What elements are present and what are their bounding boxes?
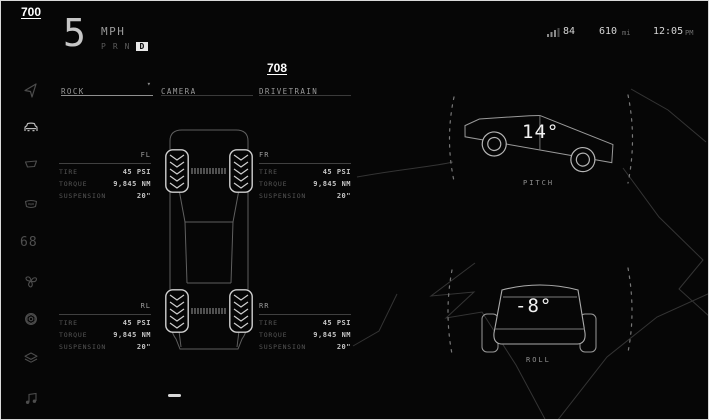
annotation-708: 708 [267, 61, 287, 75]
torque-value: 9,845 NM [113, 180, 151, 188]
roll-bracket-right [628, 268, 632, 352]
chevron-down-icon: ▾ [147, 80, 151, 88]
tire-label: TIRE [259, 168, 278, 176]
tab-rock-label: ROCK [61, 87, 85, 96]
suspension-label: SUSPENSION [59, 192, 106, 200]
pitch-value: 14° [522, 121, 559, 143]
sidebar-item-navigation[interactable] [23, 82, 41, 100]
wheel-panel-fl: FL TIRE45 PSI TORQUE9,845 NM SUSPENSION2… [59, 151, 151, 200]
suspension-label: SUSPENSION [259, 343, 306, 351]
suspension-label: SUSPENSION [59, 343, 106, 351]
sidebar-item-defrost[interactable] [23, 196, 41, 214]
sidebar-item-vehicle[interactable] [23, 119, 41, 137]
tire-rl [166, 290, 188, 332]
tire-value: 45 PSI [323, 168, 351, 176]
wiper-icon [23, 156, 39, 172]
tab-drivetrain-label: DRIVETRAIN [259, 87, 318, 96]
suspension-value: 20" [337, 192, 351, 200]
fan-icon [23, 273, 39, 289]
torque-value: 9,845 NM [313, 180, 351, 188]
navigation-arrow-icon [23, 82, 39, 98]
sidebar-item-wheel-hub[interactable] [23, 311, 41, 329]
wheel-hub-icon [23, 311, 39, 327]
wheel-panel-rl: RL TIRE45 PSI TORQUE9,845 NM SUSPENSION2… [59, 302, 151, 351]
tab-camera[interactable]: CAMERA [161, 79, 253, 96]
truck-top-view [151, 125, 267, 357]
tab-drivetrain[interactable]: DRIVETRAIN [259, 79, 351, 96]
roll-value: -8° [515, 295, 552, 317]
wheel-panel-rr: RR TIRE45 PSI TORQUE9,845 NM SUSPENSION2… [259, 302, 351, 351]
torque-label: TORQUE [59, 331, 87, 339]
sidebar-item-layers[interactable] [23, 350, 41, 368]
torque-label: TORQUE [259, 180, 287, 188]
tire-rr [230, 290, 252, 332]
tire-label: TIRE [259, 319, 278, 327]
roll-bracket-left [448, 270, 452, 354]
wheel-panel-fr: FR TIRE45 PSI TORQUE9,845 NM SUSPENSION2… [259, 151, 351, 200]
wheel-panel-fr-id: FR [259, 151, 351, 164]
tire-fl [166, 150, 188, 192]
cybertruck-offroad-screen: 700 708 5 MPH PRND 84 610 mi 12:05 PM [0, 0, 709, 420]
drag-handle[interactable] [168, 394, 181, 397]
sidebar-item-fan[interactable] [23, 273, 41, 291]
layers-icon [23, 350, 39, 366]
music-note-icon [23, 390, 39, 406]
car-icon [23, 119, 39, 135]
sidebar-item-media[interactable] [23, 390, 41, 408]
wheel-panel-fl-id: FL [59, 151, 151, 164]
torque-label: TORQUE [259, 331, 287, 339]
pitch-bracket-right [628, 95, 633, 183]
tire-value: 45 PSI [123, 319, 151, 327]
suspension-value: 20" [137, 192, 151, 200]
suspension-value: 20" [137, 343, 151, 351]
tab-camera-label: CAMERA [161, 87, 197, 96]
tire-value: 45 PSI [123, 168, 151, 176]
wheel-panel-rl-id: RL [59, 302, 151, 315]
tire-label: TIRE [59, 319, 78, 327]
pitch-bracket-left [450, 97, 455, 181]
pitch-label: PITCH [523, 179, 554, 187]
roll-label: ROLL [526, 356, 551, 364]
sidebar-item-wiper[interactable] [23, 156, 41, 174]
tab-rock[interactable]: ROCK ▾ [61, 79, 153, 96]
torque-label: TORQUE [59, 180, 87, 188]
torque-value: 9,845 NM [113, 331, 151, 339]
suspension-label: SUSPENSION [259, 192, 306, 200]
tire-value: 45 PSI [323, 319, 351, 327]
defrost-icon [23, 196, 39, 212]
wheel-panel-rr-id: RR [259, 302, 351, 315]
tire-label: TIRE [59, 168, 78, 176]
suspension-value: 20" [337, 343, 351, 351]
torque-value: 9,845 NM [313, 331, 351, 339]
annotation-700: 700 [21, 5, 41, 19]
signal-bars-icon [547, 28, 560, 37]
tire-fr [230, 150, 252, 192]
